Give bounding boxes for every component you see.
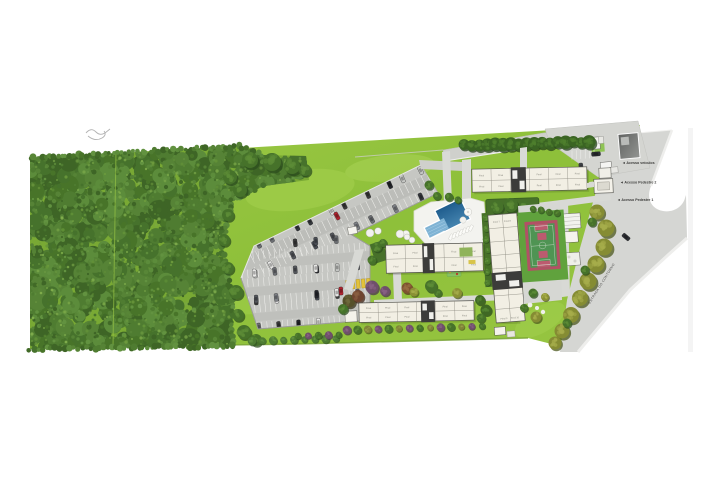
svg-text:Final: Final [385,308,391,310]
svg-text:Final: Final [479,186,485,188]
svg-text:Final: Final [575,184,581,186]
svg-text:Final: Final [413,266,419,268]
svg-text:Final: Final [366,317,372,319]
svg-text:◄ Acesso Pedestre 1: ◄ Acesso Pedestre 1 [617,198,653,202]
svg-text:Final: Final [498,186,504,188]
svg-text:Final: Final [405,317,411,319]
svg-text:Final: Final [393,266,399,268]
svg-text:Final: Final [443,306,449,308]
svg-text:Final: Final [451,251,457,253]
svg-text:Final: Final [536,174,542,176]
svg-text:Final: Final [366,308,372,310]
svg-text:Final: Final [462,315,468,317]
svg-text:Final: Final [462,306,468,308]
svg-text:Final: Final [537,185,543,187]
svg-text:Final: Final [452,265,458,267]
svg-text:Final: Final [479,175,485,177]
svg-text:Final: Final [471,264,477,266]
svg-text:Final: Final [385,317,391,319]
svg-text:Final: Final [443,316,449,318]
svg-text:Final: Final [412,252,418,254]
svg-text:Final: Final [556,185,562,187]
svg-text:Final: Final [404,307,410,309]
svg-text:Final: Final [498,175,504,177]
svg-text:◄ Acesso Pedestre 2: ◄ Acesso Pedestre 2 [620,181,656,185]
svg-text:Final: Final [575,173,581,175]
svg-text:Final: Final [393,253,399,255]
svg-text:Final: Final [556,174,562,176]
svg-text:◄ Acesso veículos: ◄ Acesso veículos [622,161,655,165]
